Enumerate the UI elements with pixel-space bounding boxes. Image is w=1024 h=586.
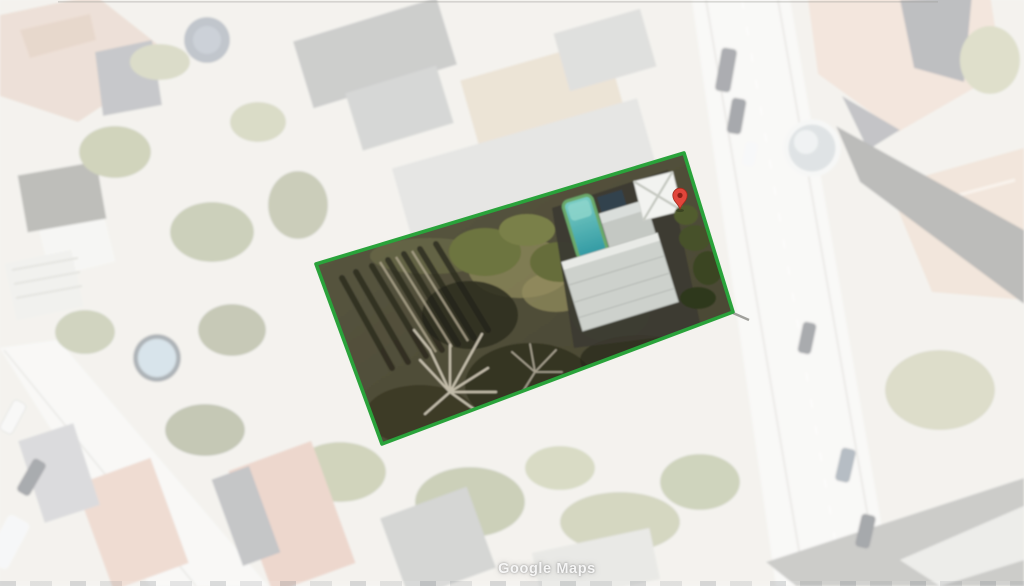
satellite-canvas[interactable] (0, 0, 1024, 586)
google-maps-watermark: Google Maps (498, 561, 596, 577)
attribution-strip (0, 581, 1024, 586)
map-pin-dot (677, 193, 682, 198)
map-viewport[interactable]: Google Maps (0, 0, 1024, 586)
top-edge-line (58, 1, 938, 3)
